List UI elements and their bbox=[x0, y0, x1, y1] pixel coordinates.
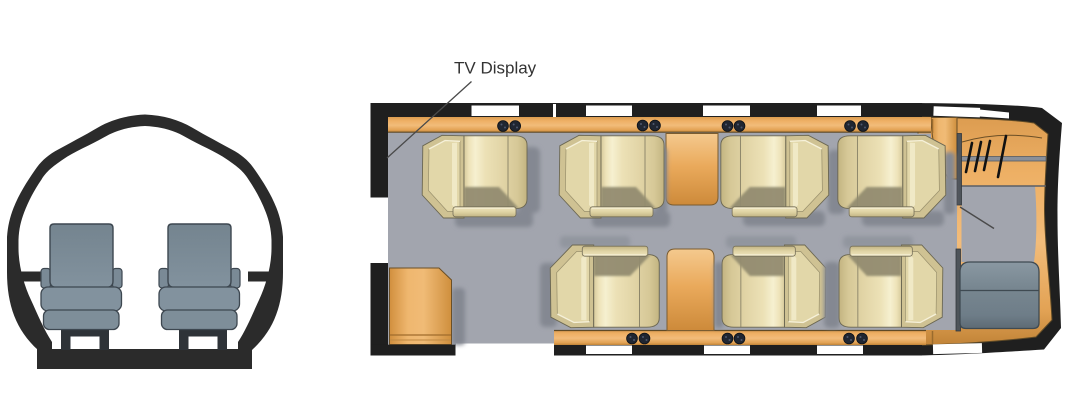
svg-text:TV Display: TV Display bbox=[454, 59, 537, 78]
